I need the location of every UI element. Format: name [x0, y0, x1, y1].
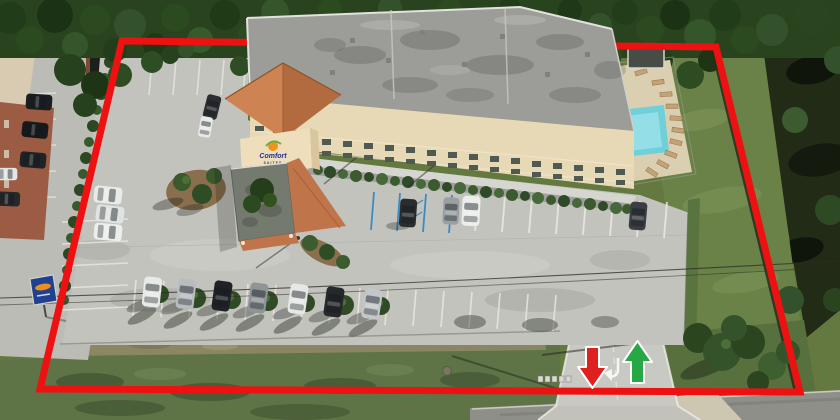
car: [25, 93, 52, 111]
car: [21, 121, 49, 139]
car: [93, 222, 122, 241]
car: [93, 185, 123, 205]
curb-grates: [538, 376, 571, 382]
car: [141, 276, 162, 308]
brand-text: Comfort: [259, 153, 287, 160]
manhole: [443, 367, 452, 376]
aerial-photo: Comfort SUITES: [0, 0, 840, 420]
car: [175, 278, 197, 310]
car: [442, 197, 460, 225]
car: [0, 168, 17, 180]
car: [461, 196, 481, 227]
car: [0, 191, 20, 206]
car: [399, 198, 418, 227]
car: [19, 151, 47, 169]
car: [628, 201, 647, 230]
car: [95, 204, 125, 224]
